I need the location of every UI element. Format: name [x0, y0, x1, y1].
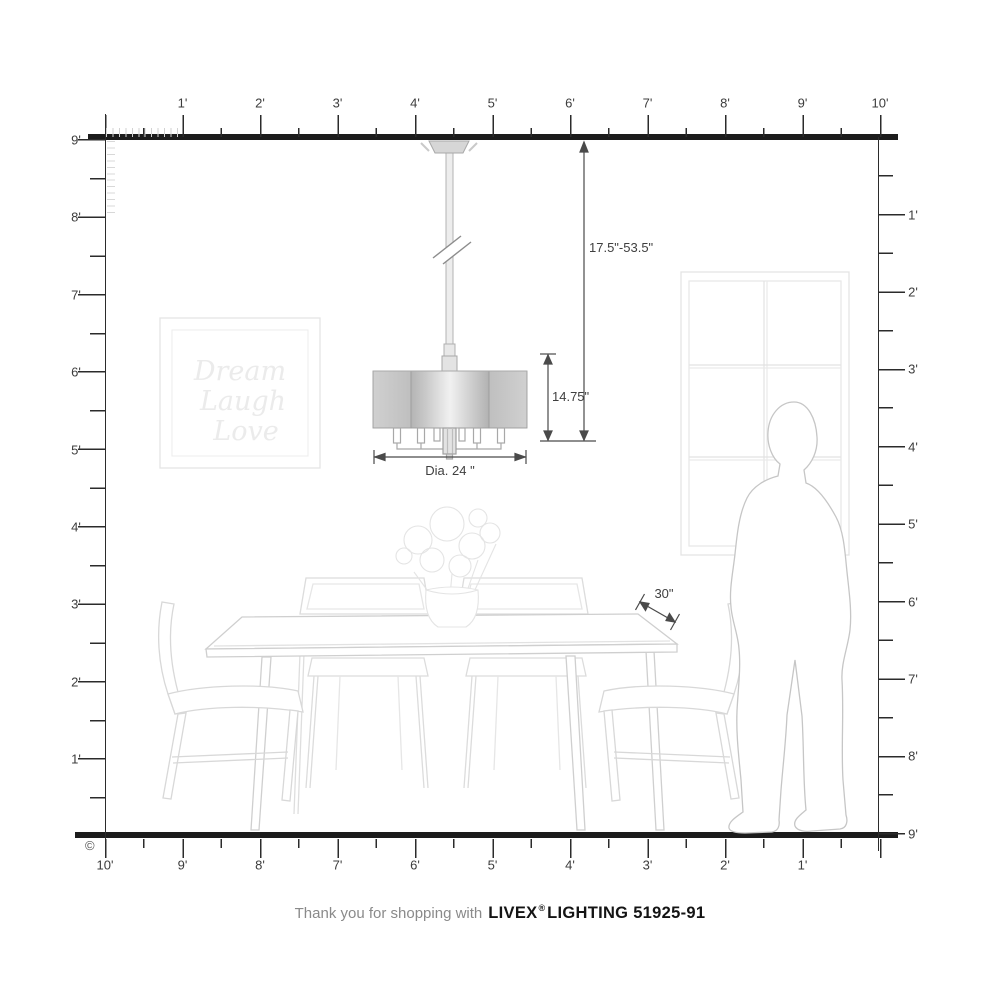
left-ruler-label: 8' — [71, 210, 81, 225]
left-ruler-label: 5' — [71, 442, 81, 457]
fixture-height-label: 14.75" — [552, 389, 589, 404]
left-ruler-label: 1' — [71, 752, 81, 767]
footer-thanks-text: Thank you for shopping with — [295, 905, 483, 922]
registered-trademark-icon: ® — [538, 903, 545, 913]
left-ruler-label: 6' — [71, 365, 81, 380]
bottom-ruler-label: 10' — [97, 858, 114, 873]
right-ruler-label: 5' — [908, 517, 918, 532]
bottom-ruler-label: 3' — [643, 858, 653, 873]
bottom-ruler-label: 9' — [178, 858, 188, 873]
top-ruler-label: 10' — [872, 96, 889, 111]
bottom-ruler-label: 7' — [333, 858, 343, 873]
bottom-ruler-label: 2' — [720, 858, 730, 873]
top-ruler-label: 6' — [565, 96, 575, 111]
right-ruler-label: 1' — [908, 207, 918, 222]
top-ruler-label: 8' — [720, 96, 730, 111]
product-dimension-diagram: 1'2'3'4'5'6'7'8'9'10' 9'8'7'6'5'4'3'2'1'… — [0, 0, 1000, 1000]
left-ruler-label: 4' — [71, 520, 81, 535]
right-ruler-label: 8' — [908, 749, 918, 764]
drum-shade — [373, 371, 527, 428]
wall-art-line3: Love — [212, 416, 278, 447]
left-ruler-label: 9' — [71, 133, 81, 148]
diameter-label: Dia. 24 " — [373, 463, 527, 478]
right-ruler-label: 7' — [908, 671, 918, 686]
footer-product-number: LIGHTING 51925-91 — [547, 904, 705, 922]
top-ruler-label: 9' — [798, 96, 808, 111]
scene-illustration: Dream Laugh Love — [0, 0, 1000, 1000]
copyright-symbol: © — [85, 838, 95, 853]
left-ruler-label: 3' — [71, 597, 81, 612]
footer-brand: LIVEX — [488, 904, 537, 922]
right-ruler-label: 2' — [908, 284, 918, 299]
top-ruler-label: 2' — [255, 96, 265, 111]
wall-art-line1: Dream — [193, 356, 286, 387]
candle-arms — [394, 428, 505, 459]
top-ruler-label: 5' — [488, 96, 498, 111]
bottom-ruler-label: 1' — [798, 858, 808, 873]
left-ruler-label: 2' — [71, 674, 81, 689]
wall-art-frame: Dream Laugh Love — [160, 318, 320, 468]
bottom-ruler-label: 5' — [488, 858, 498, 873]
top-ruler-label: 1' — [178, 96, 188, 111]
chandelier — [373, 141, 527, 459]
right-ruler-label: 3' — [908, 362, 918, 377]
hanging-height-label: 17.5"-53.5" — [589, 240, 653, 255]
footer: Thank you for shopping withLIVEX®LIGHTIN… — [0, 903, 1000, 923]
top-ruler-label: 4' — [410, 96, 420, 111]
wall-art-line2: Laugh — [199, 386, 286, 417]
chandelier-canopy — [429, 141, 469, 153]
bottom-ruler-label: 8' — [255, 858, 265, 873]
top-ruler-label: 7' — [643, 96, 653, 111]
left-ruler-label: 7' — [71, 287, 81, 302]
bottom-ruler-label: 4' — [565, 858, 575, 873]
bottom-ruler-label: 6' — [410, 858, 420, 873]
right-ruler-label: 4' — [908, 439, 918, 454]
right-ruler-label: 9' — [908, 826, 918, 841]
top-ruler-label: 3' — [333, 96, 343, 111]
right-ruler-label: 6' — [908, 594, 918, 609]
table-edge-label: 30" — [644, 586, 684, 601]
